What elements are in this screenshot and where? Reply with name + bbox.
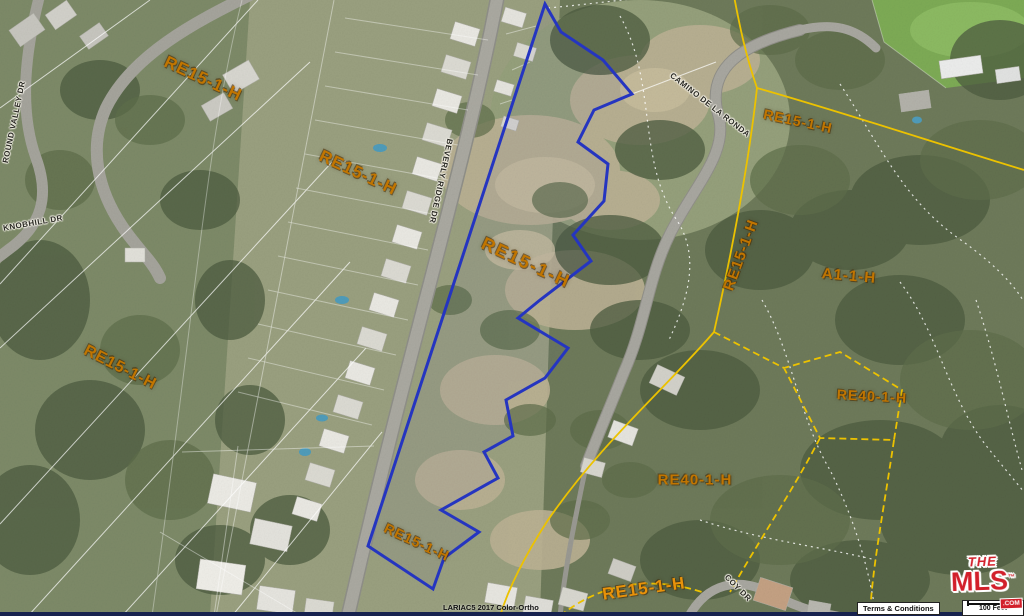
trademark-symbol: ™ [1008, 574, 1015, 581]
the-mls-logo[interactable]: THE MLS™ .COM [943, 555, 1023, 610]
imagery-credit: LARIAC5 2017 Color-Ortho [443, 603, 539, 612]
mls-logo-com-badge: .COM [1000, 598, 1023, 610]
mls-logo-mls-text: MLS™ [944, 566, 1023, 595]
zoning-label: RE40-1-H [658, 472, 733, 489]
terms-and-conditions-link[interactable]: Terms & Conditions [857, 602, 940, 615]
mls-map-view: RE15-1-H RE15-1-H RE15-1-H RE15-1-H RE15… [0, 0, 1024, 616]
aerial-imagery [0, 0, 1024, 616]
